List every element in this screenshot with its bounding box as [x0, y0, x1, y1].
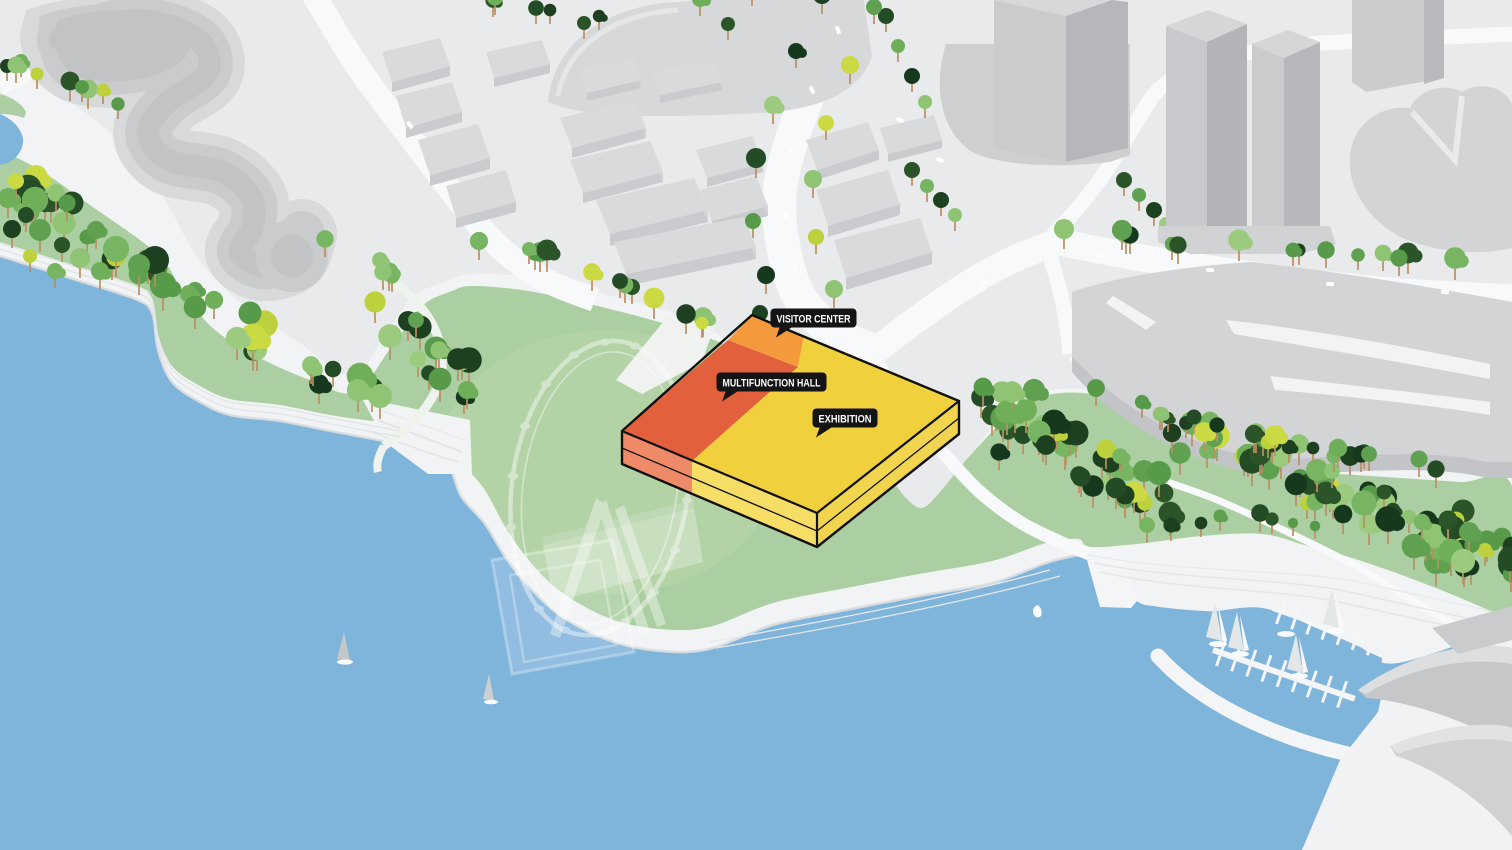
svg-text:MULTIFUNCTION HALL: MULTIFUNCTION HALL	[723, 377, 821, 389]
svg-text:VISITOR CENTER: VISITOR CENTER	[777, 313, 851, 325]
svg-text:EXHIBITION: EXHIBITION	[819, 413, 872, 425]
